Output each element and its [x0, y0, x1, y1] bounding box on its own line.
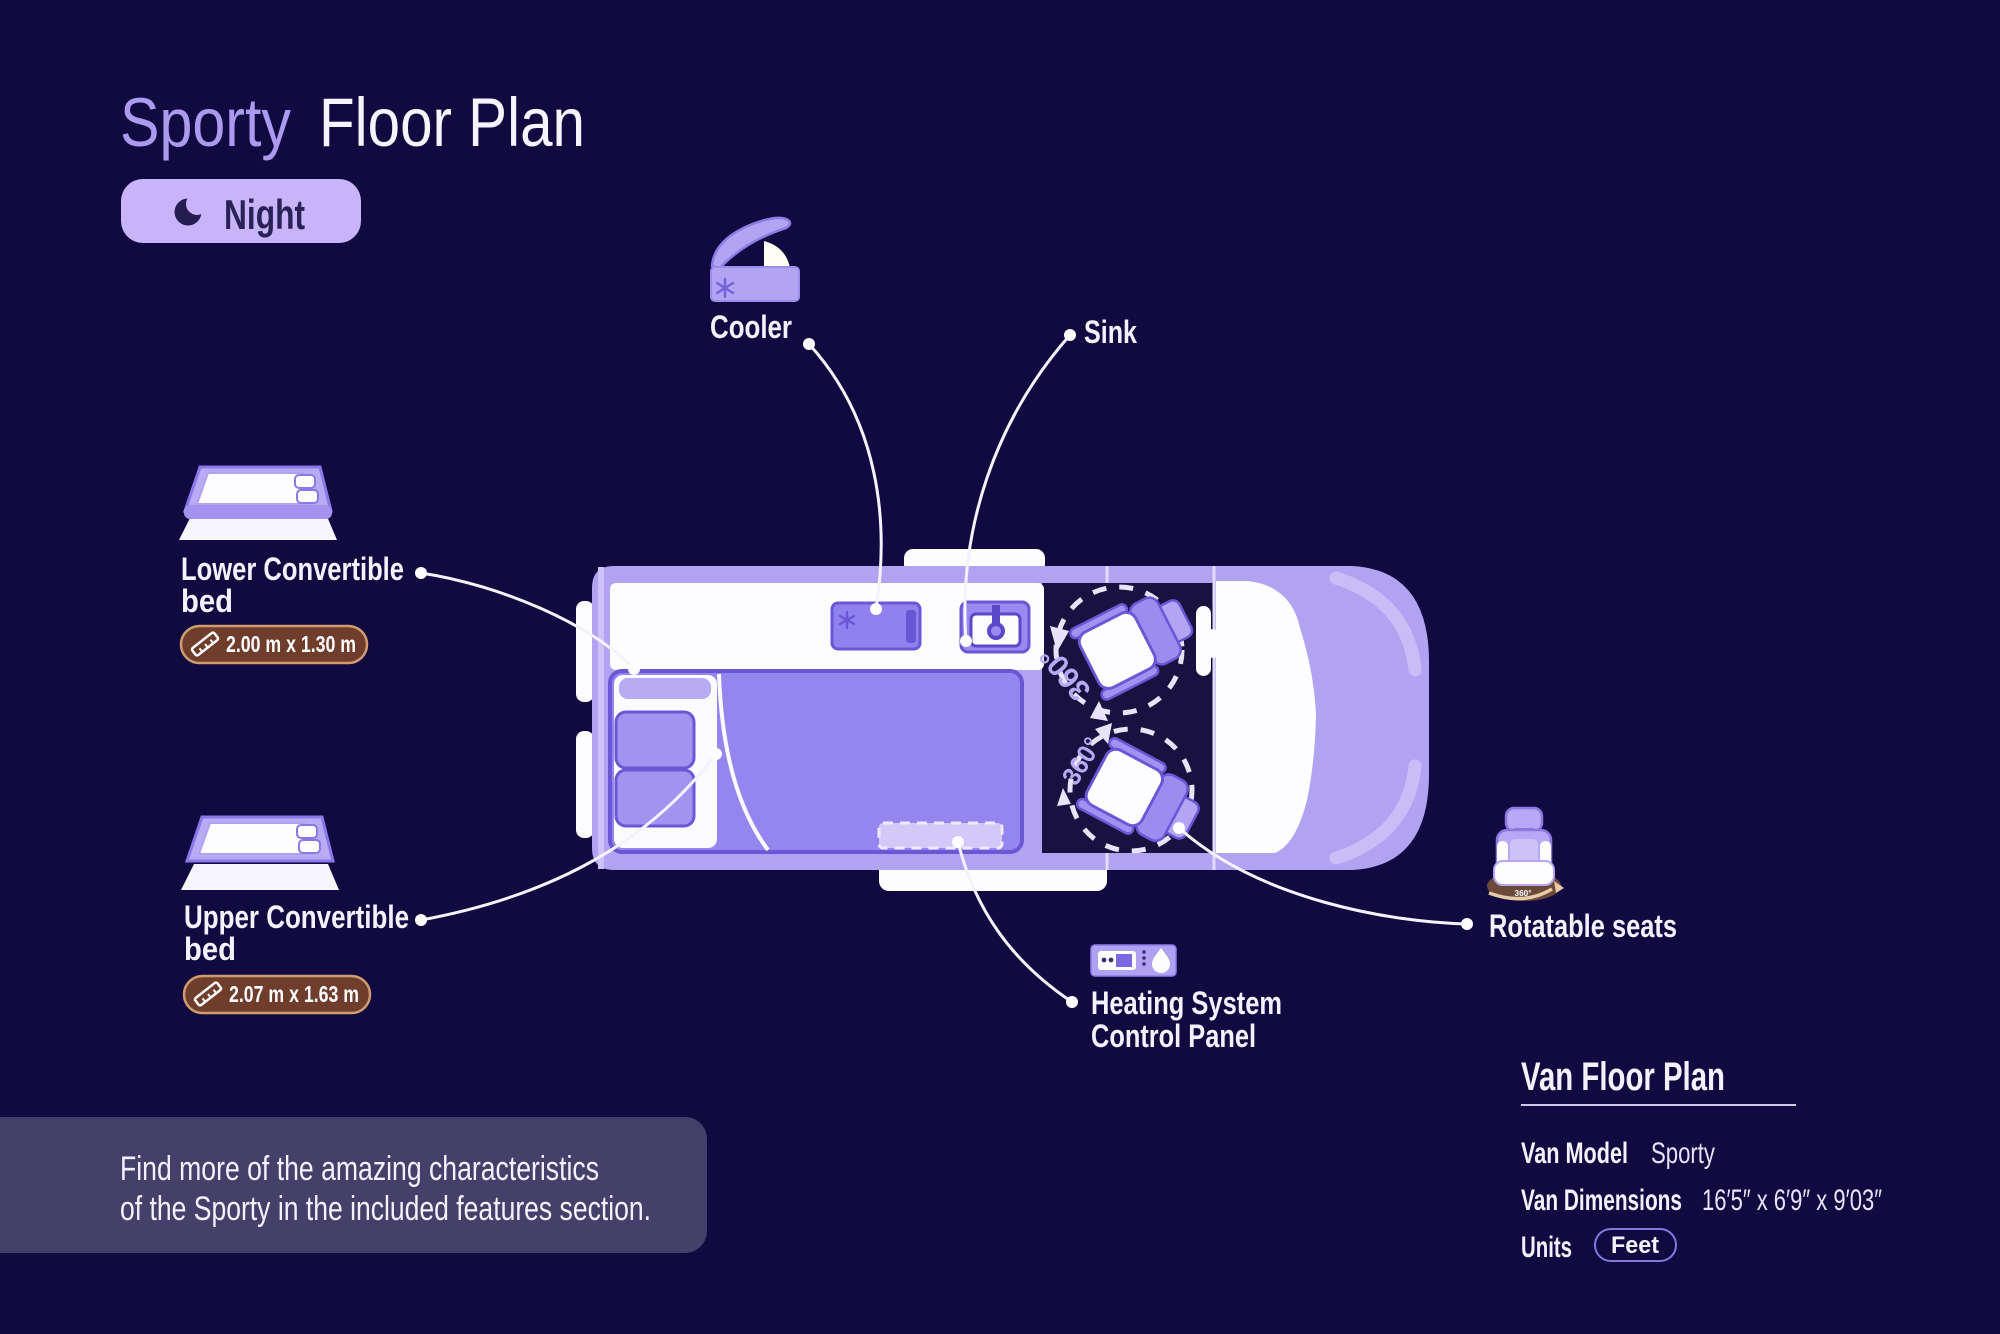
svg-text:Control Panel: Control Panel [1091, 1018, 1256, 1054]
svg-text:Van Floor Plan: Van Floor Plan [1521, 1055, 1725, 1099]
svg-text:of the Sporty in the included: of the Sporty in the included features s… [120, 1190, 651, 1228]
svg-text:Van Dimensions: Van Dimensions [1521, 1184, 1682, 1217]
svg-text:bed: bed [181, 583, 233, 619]
svg-text:bed: bed [184, 931, 236, 967]
svg-text:Cooler: Cooler [710, 309, 792, 345]
svg-text:360°: 360° [1515, 888, 1533, 898]
svg-text:2.07 m x 1.63 m: 2.07 m x 1.63 m [229, 981, 359, 1007]
svg-text:Lower Convertible: Lower Convertible [181, 551, 404, 587]
svg-text:2.00 m x 1.30 m: 2.00 m x 1.30 m [226, 631, 356, 657]
svg-text:Sporty: Sporty [1651, 1137, 1715, 1170]
svg-text:Sink: Sink [1084, 314, 1137, 350]
svg-text:Night: Night [224, 191, 305, 238]
svg-text:16′5″ x 6′9″ x 9′03″: 16′5″ x 6′9″ x 9′03″ [1702, 1184, 1882, 1217]
svg-text:Heating System: Heating System [1091, 985, 1282, 1021]
svg-text:Floor Plan: Floor Plan [319, 84, 585, 161]
svg-text:Feet: Feet [1611, 1232, 1659, 1259]
svg-text:Units: Units [1521, 1231, 1572, 1264]
svg-text:Van Model: Van Model [1521, 1137, 1628, 1170]
svg-text:Find more of the amazing chara: Find more of the amazing characteristics [120, 1150, 599, 1188]
svg-text:Rotatable seats: Rotatable seats [1489, 908, 1677, 944]
svg-text:Upper Convertible: Upper Convertible [184, 899, 409, 935]
svg-text:Sporty: Sporty [120, 84, 291, 161]
